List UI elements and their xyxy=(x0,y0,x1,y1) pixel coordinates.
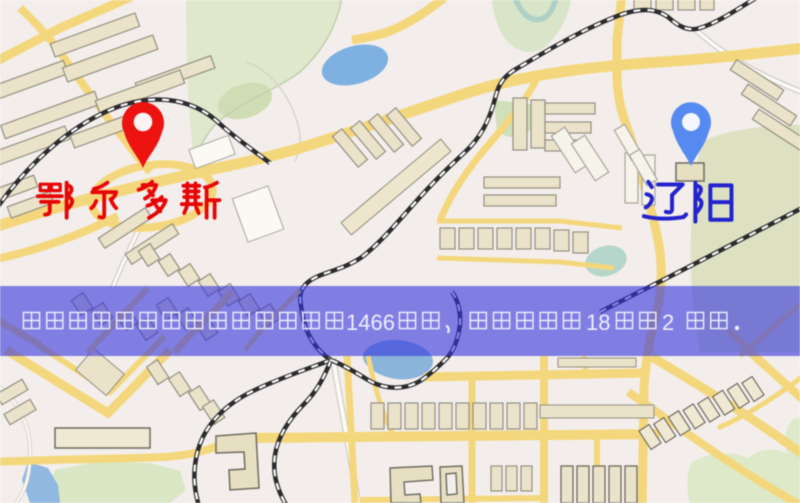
svg-text:2: 2 xyxy=(662,310,674,335)
svg-text:18: 18 xyxy=(586,310,610,335)
svg-text:1466: 1466 xyxy=(346,310,395,335)
